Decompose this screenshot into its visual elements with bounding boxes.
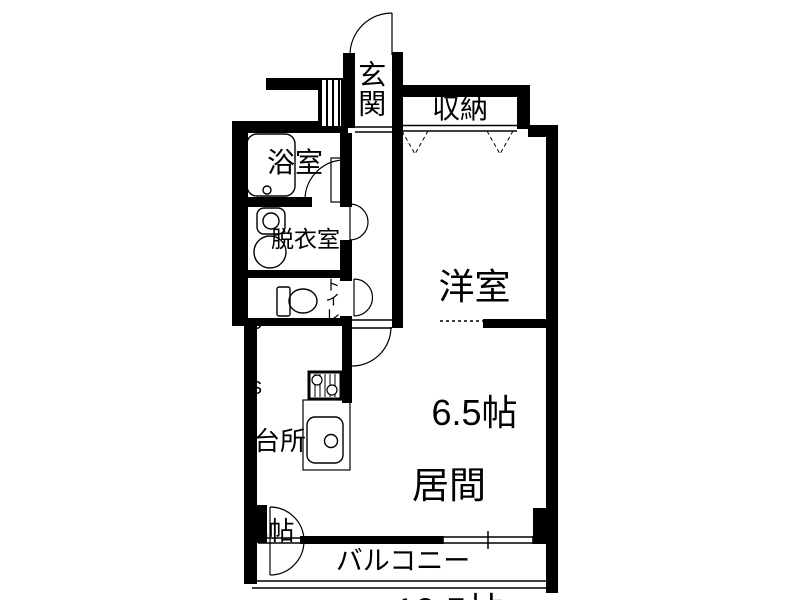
- front-door-swing-icon: [350, 13, 392, 55]
- entrance-step: [355, 127, 392, 132]
- living-room-name: 居間: [352, 465, 546, 507]
- room-label-storage: 収納: [403, 94, 517, 124]
- kitchen-sink-icon: [303, 400, 350, 470]
- room-label-bathroom: 浴室: [267, 148, 323, 178]
- room-label-dressing: 脱衣室: [271, 227, 340, 252]
- closet-fold-marks: [402, 131, 513, 154]
- living-room-area: 10.5帖: [352, 591, 546, 600]
- hall-threshold: [352, 320, 392, 328]
- living-door-swing-icon: [352, 327, 391, 366]
- gas-stove-icon: [309, 372, 341, 399]
- kitchen-area: 3帖: [254, 516, 306, 546]
- room-label-entrance: 玄関: [355, 60, 385, 126]
- closet-door-track: [403, 126, 517, 132]
- ps-line-1: P: [250, 318, 270, 338]
- western-room-name: 洋室: [403, 266, 546, 308]
- room-label-toilet: トイレ: [323, 277, 339, 323]
- toilet-door-icon: [354, 279, 373, 316]
- floor-plan: 玄関 収納 洋室 6.5帖 浴室 脱衣室 P S トイレ 台所 3帖 居間 10…: [0, 0, 800, 600]
- kitchen-name: 台所: [254, 426, 306, 456]
- dressing-door-icon: [350, 204, 368, 240]
- room-label-balcony: バルコニー: [258, 547, 548, 576]
- toilet-fixture-icon: [277, 287, 317, 316]
